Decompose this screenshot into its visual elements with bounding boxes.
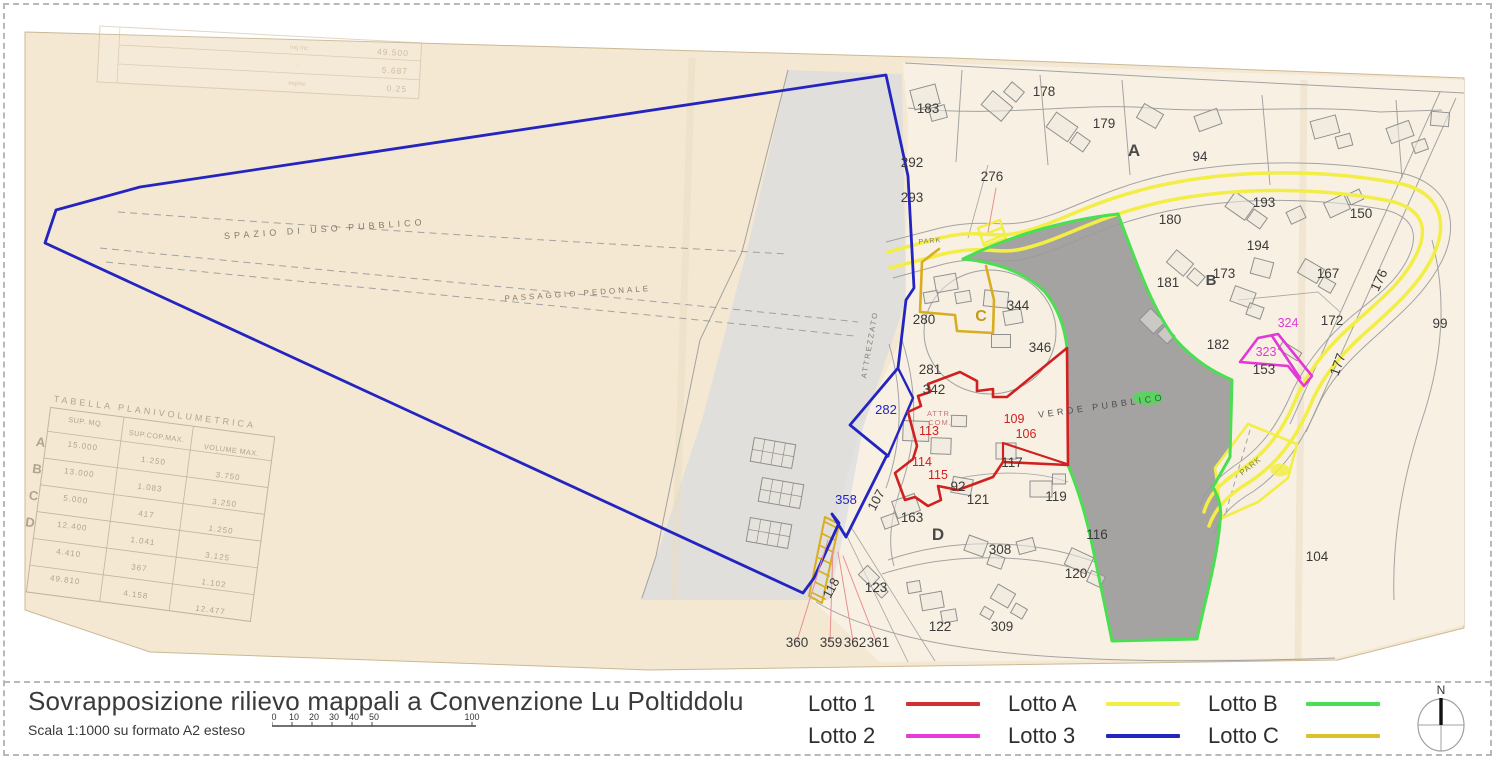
legend-label: Lotto B <box>1208 691 1300 717</box>
top-box-value: 0.25 <box>386 83 407 94</box>
map-label: 178 <box>1033 84 1056 99</box>
map-label: 346 <box>1029 340 1052 355</box>
table-zone-letter: D <box>24 514 35 530</box>
legend-color-line <box>906 734 980 738</box>
legend-item: Lotto A <box>1008 691 1208 717</box>
map-canvas: 18317817994A292276293180193150194B173167… <box>0 0 1495 682</box>
legend-color-line <box>1106 734 1180 738</box>
scale-tick-label: 10 <box>289 712 299 722</box>
map-label: 94 <box>1192 149 1208 164</box>
legend-item: Lotto C <box>1208 723 1408 749</box>
map-label: 362 <box>844 635 867 650</box>
building-footprint <box>992 335 1011 348</box>
legend-label: Lotto 3 <box>1008 723 1100 749</box>
legend-color-line <box>1306 702 1380 706</box>
legend-color-line <box>1306 734 1380 738</box>
scale-bar-svg: 01020304050100 <box>272 708 502 734</box>
map-label: 309 <box>991 619 1014 634</box>
legend-label: Lotto C <box>1208 723 1300 749</box>
map-label: 344 <box>1007 298 1030 313</box>
map-label: 117 <box>1001 455 1023 470</box>
map-label: 281 <box>919 362 942 377</box>
map-label: 120 <box>1065 566 1088 581</box>
scale-tick-label: 0 <box>272 712 277 722</box>
legend-row: Lotto 1Lotto ALotto B <box>808 688 1408 720</box>
north-label: N <box>1437 683 1446 697</box>
map-label: 280 <box>913 312 936 327</box>
map-label: 194 <box>1247 238 1270 253</box>
map-label: 323 <box>1256 345 1277 359</box>
legend-item: Lotto 3 <box>1008 723 1208 749</box>
map-label: 119 <box>1045 489 1067 504</box>
scale-tick-label: 40 <box>349 712 359 722</box>
legend-item: Lotto B <box>1208 691 1408 717</box>
top-box-note: - <box>297 63 299 69</box>
map-label: A <box>1128 141 1140 160</box>
map-label: 115 <box>928 468 948 482</box>
building-footprint <box>1053 474 1066 484</box>
map-label: 122 <box>929 619 952 634</box>
building-footprint <box>983 290 1009 308</box>
map-label: 342 <box>923 382 946 397</box>
north-compass: N <box>1412 682 1470 759</box>
building-footprint <box>1430 111 1449 127</box>
map-label: 181 <box>1157 275 1180 290</box>
lotto-a-park-blob <box>1271 464 1289 476</box>
legend-color-line <box>1106 702 1180 706</box>
scale-tick-label: 50 <box>369 712 379 722</box>
map-label: 153 <box>1253 362 1276 377</box>
legend: Lotto 1Lotto ALotto BLotto 2Lotto 3Lotto… <box>808 688 1408 752</box>
map-label: ATTR. <box>927 409 953 418</box>
scale-tick-label: 30 <box>329 712 339 722</box>
legend-item: Lotto 2 <box>808 723 1008 749</box>
scale-end-label: 100 <box>464 712 479 722</box>
map-label: 109 <box>1004 412 1025 426</box>
map-label: 114 <box>912 455 932 469</box>
map-label: 123 <box>865 580 888 595</box>
map-label: 179 <box>1093 116 1116 131</box>
map-label: 173 <box>1213 266 1236 281</box>
scale-tick-label: 20 <box>309 712 319 722</box>
legend-label: Lotto 1 <box>808 691 900 717</box>
top-box-note: mq/mc <box>288 81 306 88</box>
building-footprint <box>907 580 922 593</box>
map-label: 150 <box>1350 206 1373 221</box>
map-label: 180 <box>1159 212 1182 227</box>
scale-note: Scala 1:1000 su formato A2 esteso <box>28 722 245 738</box>
legend-color-line <box>906 702 980 706</box>
map-label: 167 <box>1317 266 1340 281</box>
building-footprint <box>934 273 958 293</box>
map-label: 293 <box>901 190 924 205</box>
map-label: 276 <box>981 169 1004 184</box>
map-label: 116 <box>1086 527 1108 542</box>
map-label: 163 <box>901 510 924 525</box>
map-label: 172 <box>1321 313 1344 328</box>
map-label: D <box>932 525 944 544</box>
map-label: COM. <box>928 418 952 427</box>
map-label: 106 <box>1016 427 1037 441</box>
legend-label: Lotto 2 <box>808 723 900 749</box>
building-footprint <box>920 591 944 611</box>
top-box-value: 49.500 <box>377 47 409 59</box>
building-footprint <box>931 438 952 455</box>
map-label: 99 <box>1432 316 1447 331</box>
title-band-separator <box>4 681 1491 683</box>
legend-row: Lotto 2Lotto 3Lotto C <box>808 720 1408 752</box>
building-footprint <box>955 290 972 303</box>
map-label: 92 <box>950 479 965 494</box>
map-label: 359 <box>820 635 843 650</box>
scale-bar: 01020304050100 <box>272 708 502 739</box>
map-label: 361 <box>867 635 890 650</box>
top-box-note: mq mc <box>290 45 308 52</box>
map-label: 193 <box>1253 195 1276 210</box>
map-label: 324 <box>1278 316 1299 330</box>
map-label: 282 <box>875 402 897 417</box>
top-box-value: 5.687 <box>382 65 409 76</box>
table-zone-letter: B <box>32 461 43 477</box>
map-label: 183 <box>917 101 940 116</box>
map-label: 292 <box>901 155 924 170</box>
map-label: C <box>975 308 987 325</box>
map-label: 104 <box>1306 549 1329 564</box>
legend-label: Lotto A <box>1008 691 1100 717</box>
building-footprint <box>923 290 939 303</box>
legend-item: Lotto 1 <box>808 691 1008 717</box>
compass-svg: N <box>1412 682 1470 754</box>
map-label: 360 <box>786 635 809 650</box>
cadastral-map-svg: 18317817994A292276293180193150194B173167… <box>0 0 1495 682</box>
map-label: 358 <box>835 492 857 507</box>
map-label: 182 <box>1207 337 1230 352</box>
building-footprint <box>951 415 966 427</box>
map-label: 308 <box>989 542 1012 557</box>
map-label: 121 <box>967 492 990 507</box>
